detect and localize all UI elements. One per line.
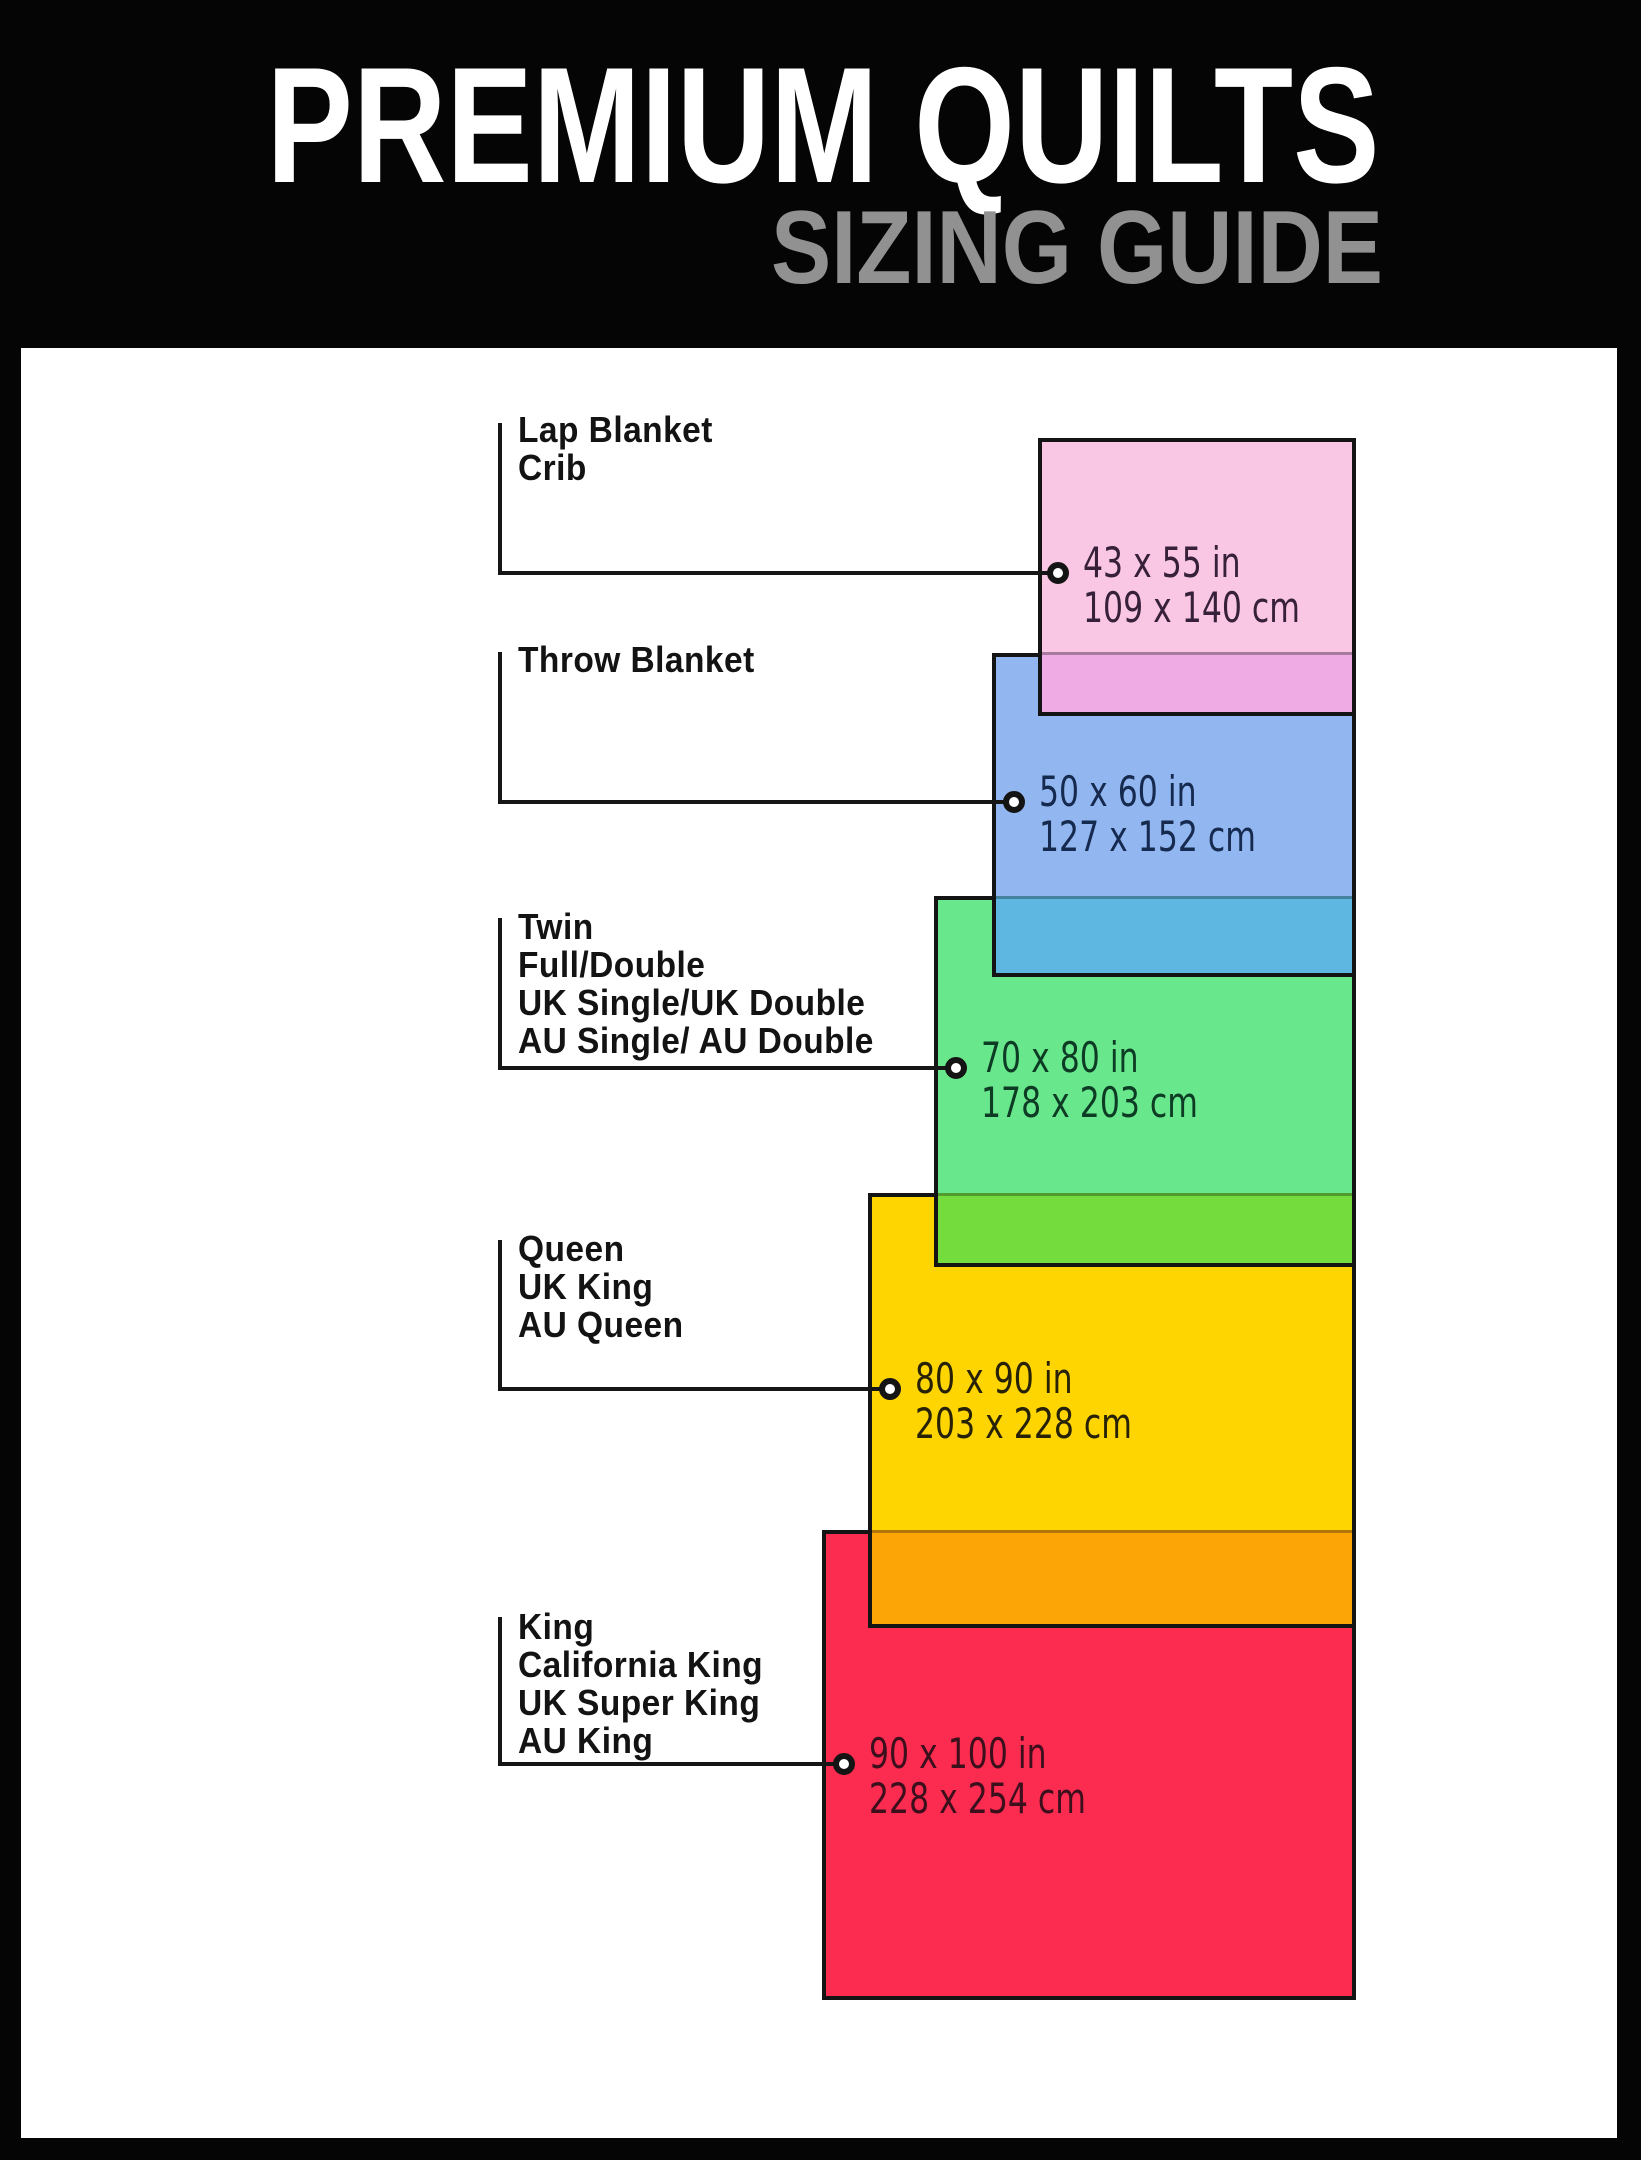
dim-cm-lap: 109 x 140 cm	[1083, 585, 1300, 631]
label-lap-blanket: Lap Blanket Crib	[518, 411, 713, 487]
dim-inches-king: 90 x 100 in	[869, 1731, 1047, 1777]
connector-vline-king	[498, 1617, 502, 1766]
overlap-band-queen-king	[872, 1530, 1352, 1624]
circle-marker-queen	[879, 1378, 901, 1400]
label-twin: Twin Full/Double UK Single/UK Double AU …	[518, 908, 874, 1060]
overlap-band-throw-twin	[996, 896, 1352, 973]
label-king: King California King UK Super King AU Ki…	[518, 1608, 763, 1760]
label-line: Queen	[518, 1230, 684, 1268]
circle-marker-throw	[1003, 791, 1025, 813]
dim-inches-throw: 50 x 60 in	[1039, 769, 1197, 815]
label-queen: Queen UK King AU Queen	[518, 1230, 684, 1344]
dim-inches-lap: 43 x 55 in	[1083, 540, 1241, 586]
connector-hline-king	[498, 1762, 844, 1766]
connector-hline-twin	[498, 1066, 956, 1070]
label-line: Lap Blanket	[518, 411, 713, 449]
label-line: UK Super King	[518, 1684, 763, 1722]
dim-inches-twin: 70 x 80 in	[981, 1035, 1139, 1081]
dim-cm-throw: 127 x 152 cm	[1039, 814, 1256, 860]
circle-marker-twin	[945, 1057, 967, 1079]
connector-hline-queen	[498, 1387, 890, 1391]
overlap-band-twin-queen	[938, 1193, 1352, 1263]
label-line: Throw Blanket	[518, 641, 755, 679]
label-line: AU Queen	[518, 1306, 684, 1344]
connector-vline-queen	[498, 1240, 502, 1391]
connector-vline-twin	[498, 918, 502, 1070]
label-line: Full/Double	[518, 946, 874, 984]
connector-hline-lap	[498, 571, 1058, 575]
circle-marker-king	[833, 1753, 855, 1775]
canvas	[21, 348, 1617, 2138]
dim-inches-queen: 80 x 90 in	[915, 1356, 1073, 1402]
label-line: UK King	[518, 1268, 684, 1306]
connector-vline-throw	[498, 652, 502, 804]
dim-cm-twin: 178 x 203 cm	[981, 1080, 1198, 1126]
label-line: UK Single/UK Double	[518, 984, 874, 1022]
overlap-band-lap-throw	[1042, 652, 1352, 712]
quilt-sizing-infographic: PREMIUM QUILTS SIZING GUIDE Lap Blanket …	[0, 0, 1641, 2160]
label-line: California King	[518, 1646, 763, 1684]
dim-cm-queen: 203 x 228 cm	[915, 1401, 1132, 1447]
label-line: King	[518, 1608, 763, 1646]
label-line: Crib	[518, 449, 713, 487]
label-line: AU King	[518, 1722, 763, 1760]
dim-cm-king: 228 x 254 cm	[869, 1776, 1086, 1822]
connector-hline-throw	[498, 800, 1014, 804]
label-line: Twin	[518, 908, 874, 946]
label-throw-blanket: Throw Blanket	[518, 641, 755, 679]
label-line: AU Single/ AU Double	[518, 1022, 874, 1060]
circle-marker-lap	[1047, 562, 1069, 584]
page-subtitle: SIZING GUIDE	[771, 190, 1383, 306]
header: PREMIUM QUILTS SIZING GUIDE	[0, 0, 1641, 348]
connector-vline-lap	[498, 423, 502, 575]
